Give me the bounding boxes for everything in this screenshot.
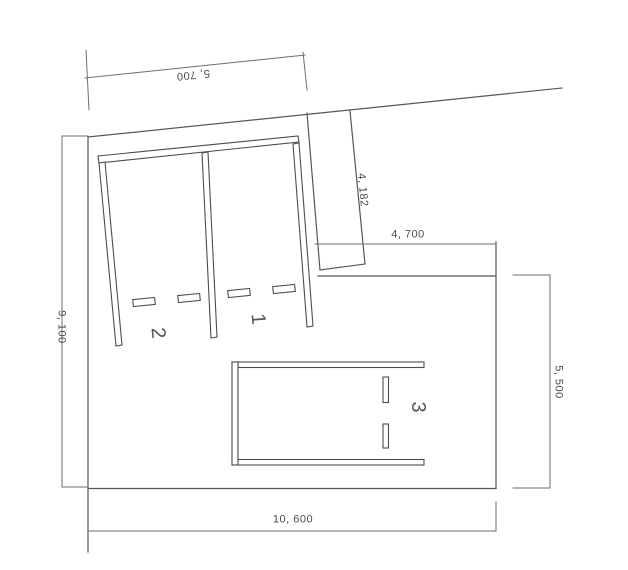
wheel-stop (383, 424, 389, 448)
dimension-text-left-height: 9, 100 (56, 310, 67, 344)
stall3-top-wall (232, 362, 424, 368)
dimension-text-inner-width: 4, 700 (391, 230, 425, 241)
dimension-text-right-height: 5, 500 (553, 365, 564, 399)
dim-5700-ext-left (86, 50, 89, 110)
stall-left-wall (99, 162, 122, 346)
boundary-top-slanted-line (88, 88, 562, 137)
dimension-text-edge-slant: 4, 182 (355, 173, 369, 207)
wheel-stop (228, 288, 251, 297)
wheel-stop (133, 297, 156, 306)
wheel-stop (178, 293, 201, 302)
stall-middle-wall (202, 152, 217, 338)
wheel-stop (273, 284, 296, 293)
stall-label-3: 3 (408, 401, 428, 412)
strip-bottom-line (320, 264, 365, 270)
dim-5700-ext-right (303, 52, 307, 90)
stall-label-1: 1 (248, 313, 269, 326)
stall-label-2: 2 (148, 327, 169, 340)
dimension-5500 (513, 275, 550, 488)
dimension-text-top: 5, 700 (176, 67, 211, 81)
wheel-stop (383, 377, 389, 403)
stall3-left-wall (232, 362, 238, 465)
stall-right-wall (293, 143, 313, 327)
strip-left-line (307, 113, 320, 270)
stall-top-bar-wall (98, 136, 299, 163)
stall-1-2-structure (98, 136, 313, 346)
site-plan-canvas: 5, 700 4, 182 4, 700 9, 100 5, 500 10, 6… (0, 0, 628, 570)
stall-3-structure (232, 362, 424, 465)
site-boundary (88, 88, 562, 552)
dimension-text-bottom-width: 10, 600 (273, 515, 313, 526)
stall3-bottom-wall (232, 460, 424, 466)
site-plan-drawing (0, 0, 628, 570)
